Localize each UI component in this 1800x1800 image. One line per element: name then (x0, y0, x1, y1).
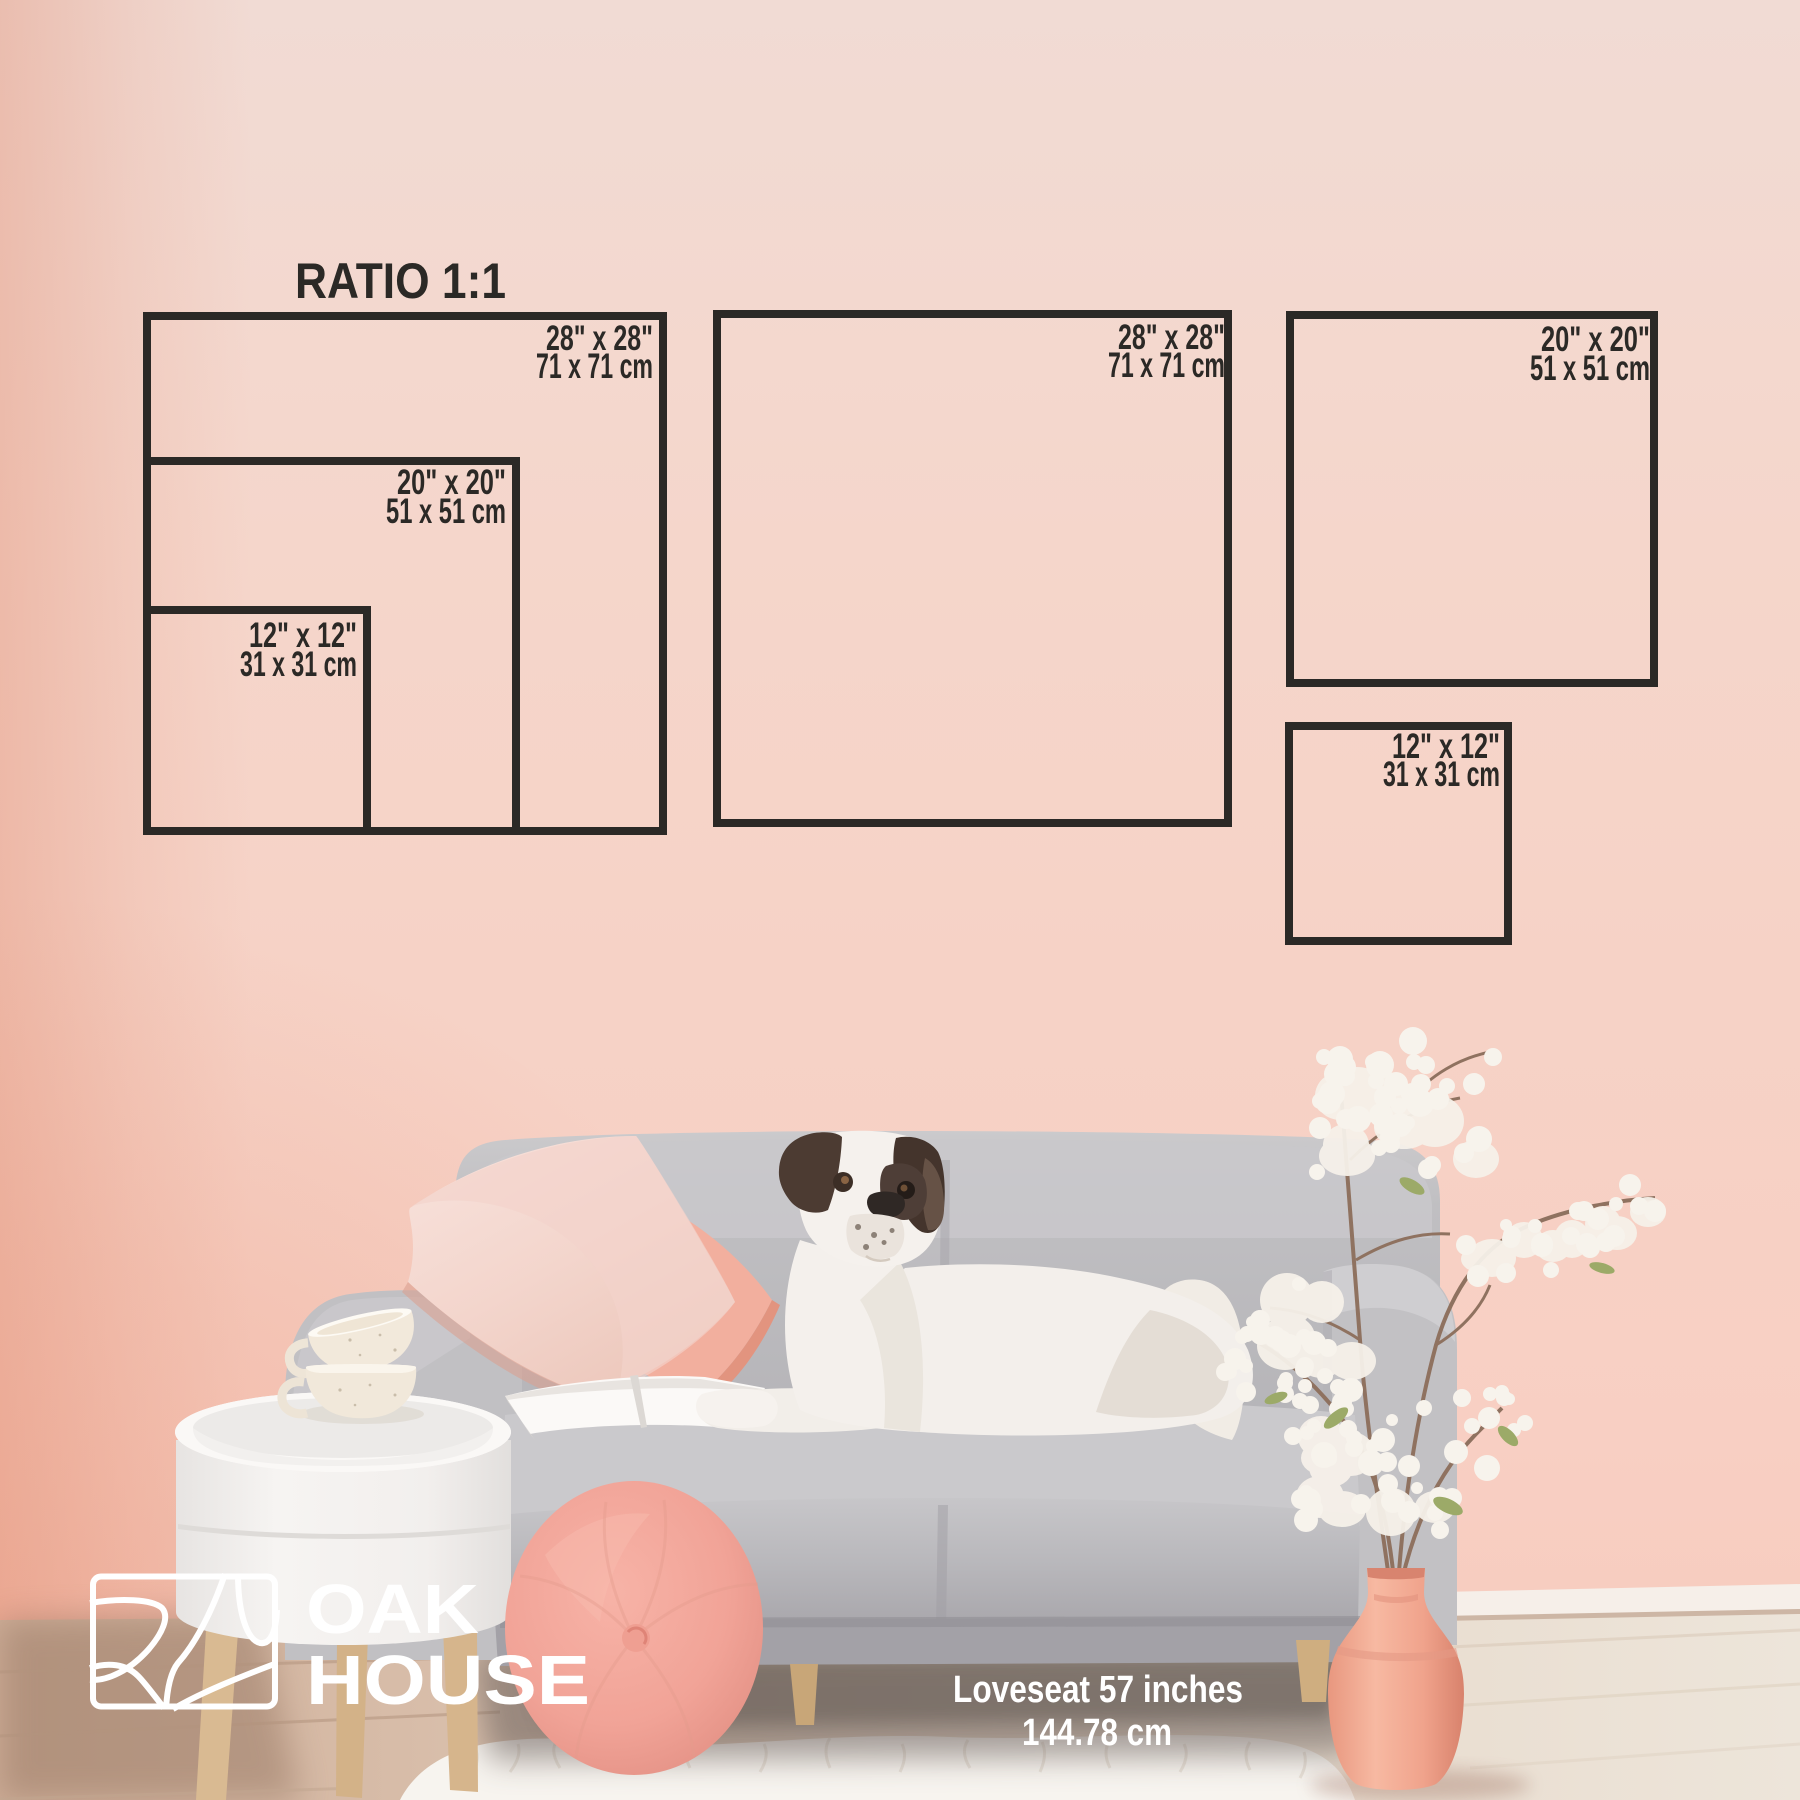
svg-text:51 x 51 cm: 51 x 51 cm (1530, 349, 1650, 388)
svg-text:31 x 31 cm: 31 x 31 cm (1383, 755, 1500, 794)
svg-text:RATIO 1:1: RATIO 1:1 (295, 253, 506, 309)
svg-text:144.78 cm: 144.78 cm (1022, 1712, 1172, 1754)
svg-text:71 x 71 cm: 71 x 71 cm (1108, 346, 1225, 385)
svg-text:31 x 31 cm: 31 x 31 cm (240, 645, 357, 684)
svg-text:OAK: OAK (306, 1570, 479, 1648)
svg-text:Loveseat 57 inches: Loveseat 57 inches (953, 1669, 1243, 1711)
svg-text:71 x 71 cm: 71 x 71 cm (536, 347, 653, 386)
svg-text:HOUSE: HOUSE (306, 1641, 590, 1719)
svg-text:51 x 51 cm: 51 x 51 cm (386, 492, 506, 531)
